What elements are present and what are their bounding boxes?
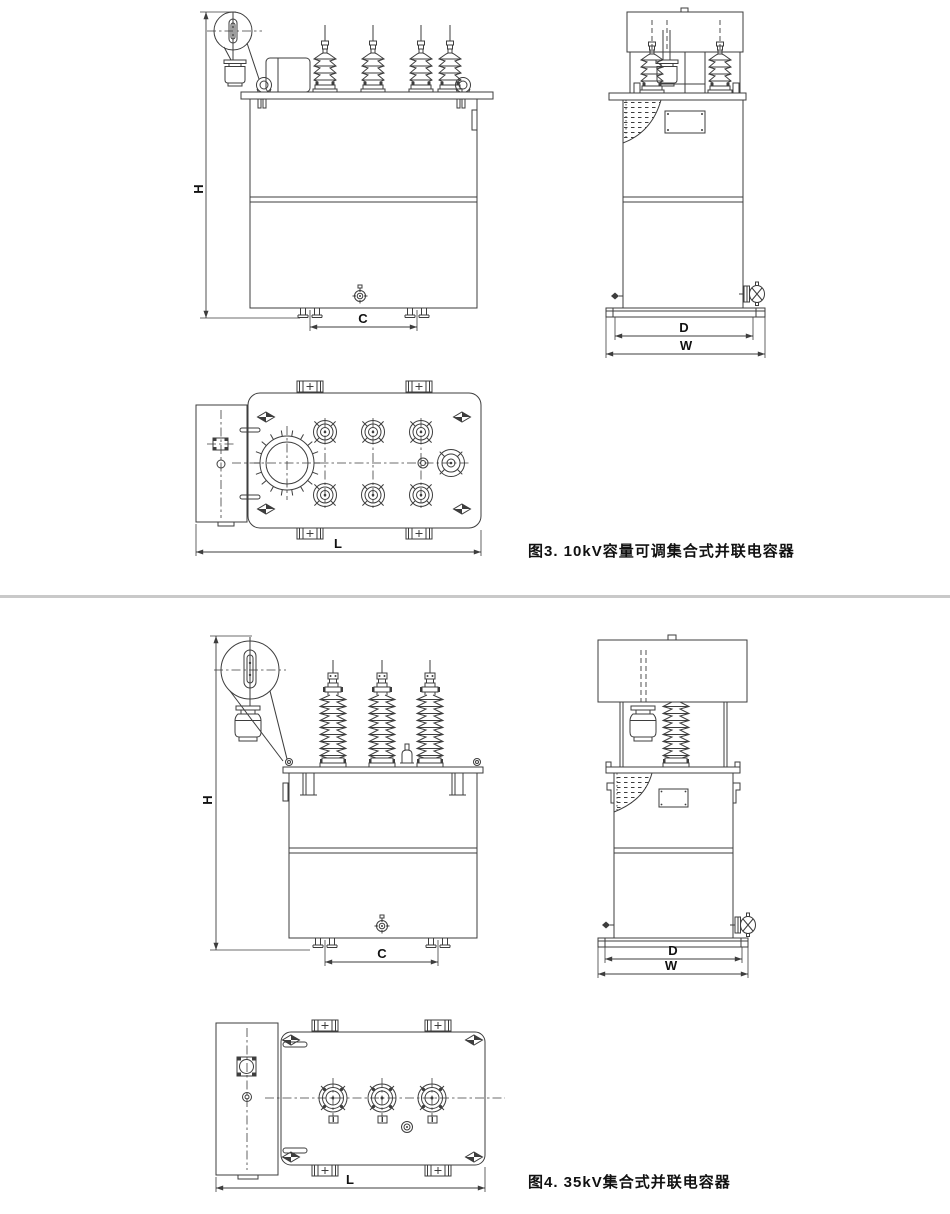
mounting-tab [406, 381, 432, 392]
figure3-caption: 图3. 10kV容量可调集合式并联电容器 [528, 540, 795, 561]
bushing-stems [333, 660, 430, 673]
dim-label-C: C [358, 311, 368, 326]
discharge-canister [656, 60, 678, 86]
figure3-side-view: D W [606, 8, 765, 358]
dim-label-W: W [680, 338, 693, 353]
bushing-centerlines [333, 1078, 432, 1122]
vent-fitting [400, 744, 414, 763]
lifting-ring-left [257, 78, 272, 94]
bushing-icon [313, 41, 337, 92]
figure4-front-view: H C [200, 636, 483, 966]
bushing-icon [438, 41, 462, 92]
flange-fitting [611, 293, 623, 300]
technical-drawing: H C [0, 0, 950, 1214]
drain-valve [730, 913, 756, 937]
figure3-dim-C: C [310, 310, 417, 331]
bushing-top-icon [362, 484, 385, 507]
figure3-dim-D: D [615, 317, 753, 340]
mounting-tab [297, 528, 323, 539]
discharge-canister [224, 60, 246, 86]
tank-band [250, 197, 477, 202]
bushing-top-icon [314, 421, 337, 444]
tank-band [614, 848, 733, 853]
tank-lid [241, 92, 493, 99]
neutral-bushing-top [438, 450, 465, 477]
tank-outline [248, 393, 481, 528]
mounting-tab [297, 381, 323, 392]
lid-pins [258, 99, 465, 108]
dim-label-D: D [679, 320, 688, 335]
dim-label-D: D [668, 943, 677, 958]
nameplate [665, 111, 705, 133]
corner-lug-icon [258, 504, 275, 514]
figure3-top-view: L [196, 381, 481, 556]
dim-label-H: H [191, 184, 206, 193]
dim-label-L: L [334, 536, 342, 551]
tank-lid [283, 767, 483, 773]
top-frame-box [598, 640, 747, 702]
section-divider [0, 595, 950, 598]
lifting-ring-left [286, 759, 293, 766]
corner-lug-icon [283, 1035, 300, 1045]
figure4-dim-H: H [200, 636, 310, 950]
bushing-icon [708, 42, 732, 93]
figure4-caption: 图4. 35kV集合式并联电容器 [528, 1171, 731, 1192]
mounting-tab [312, 1165, 338, 1176]
tank-band [623, 197, 743, 202]
nameplate [659, 789, 688, 807]
mounting-tab [406, 528, 432, 539]
tank-body [289, 773, 477, 938]
top-frame-box [627, 12, 743, 52]
bushing-icon [369, 673, 395, 767]
figure4-dim-C: C [325, 940, 438, 966]
junction-box [266, 58, 310, 92]
dim-label-H: H [200, 795, 215, 804]
mounting-tab [312, 1020, 338, 1031]
bushing-phase-labels [329, 1116, 437, 1123]
bushing-top-icon [410, 421, 433, 444]
discharge-canister [235, 706, 261, 741]
figure4-side-view: D W [598, 635, 756, 978]
bushing-icon [361, 41, 385, 92]
oil-gauge-detail [207, 12, 262, 79]
bushing-top-icon [362, 421, 385, 444]
drain-plug [375, 915, 390, 934]
bushing-stems [325, 25, 450, 41]
hanger-straps [300, 773, 466, 795]
small-port [402, 1122, 413, 1133]
corner-lug-icon [454, 504, 471, 514]
dim-label-C: C [377, 946, 387, 961]
figure3-dim-L: L [196, 524, 481, 556]
dim-label-W: W [665, 958, 678, 973]
control-cabinet [216, 1023, 278, 1179]
oil-level-hatch [623, 100, 661, 143]
oil-gauge-detail [214, 637, 287, 761]
bushing-icon [417, 673, 443, 767]
drawing-page: H C [0, 0, 950, 1214]
wall-bracket [472, 110, 477, 130]
corner-lug-icon [466, 1035, 483, 1045]
mounting-tab [425, 1165, 451, 1176]
tank-lid [606, 767, 740, 773]
base-skid [606, 308, 765, 317]
wall-bracket [283, 783, 288, 801]
tank-body [250, 99, 477, 308]
flange-fitting [602, 922, 614, 929]
corner-lug-icon [258, 412, 275, 422]
tank-lid [609, 93, 746, 100]
control-cabinet [196, 405, 247, 526]
drain-plug [353, 285, 368, 304]
discharge-canister [630, 706, 656, 741]
bushing-icon [320, 673, 346, 767]
oil-level-hatch [614, 773, 652, 812]
corner-lug-icon [454, 412, 471, 422]
bushing-icon [409, 41, 433, 92]
figure4-top-view: L [216, 1020, 505, 1192]
corner-lug-icon [466, 1152, 483, 1162]
mounting-tab [425, 1020, 451, 1031]
tank-band [289, 848, 477, 853]
figure3-front-view: H C [191, 12, 493, 331]
lifting-ring-right [474, 759, 481, 766]
dim-label-L: L [346, 1172, 354, 1187]
bushing-top-icon [410, 484, 433, 507]
bushing-top-icon [314, 484, 337, 507]
